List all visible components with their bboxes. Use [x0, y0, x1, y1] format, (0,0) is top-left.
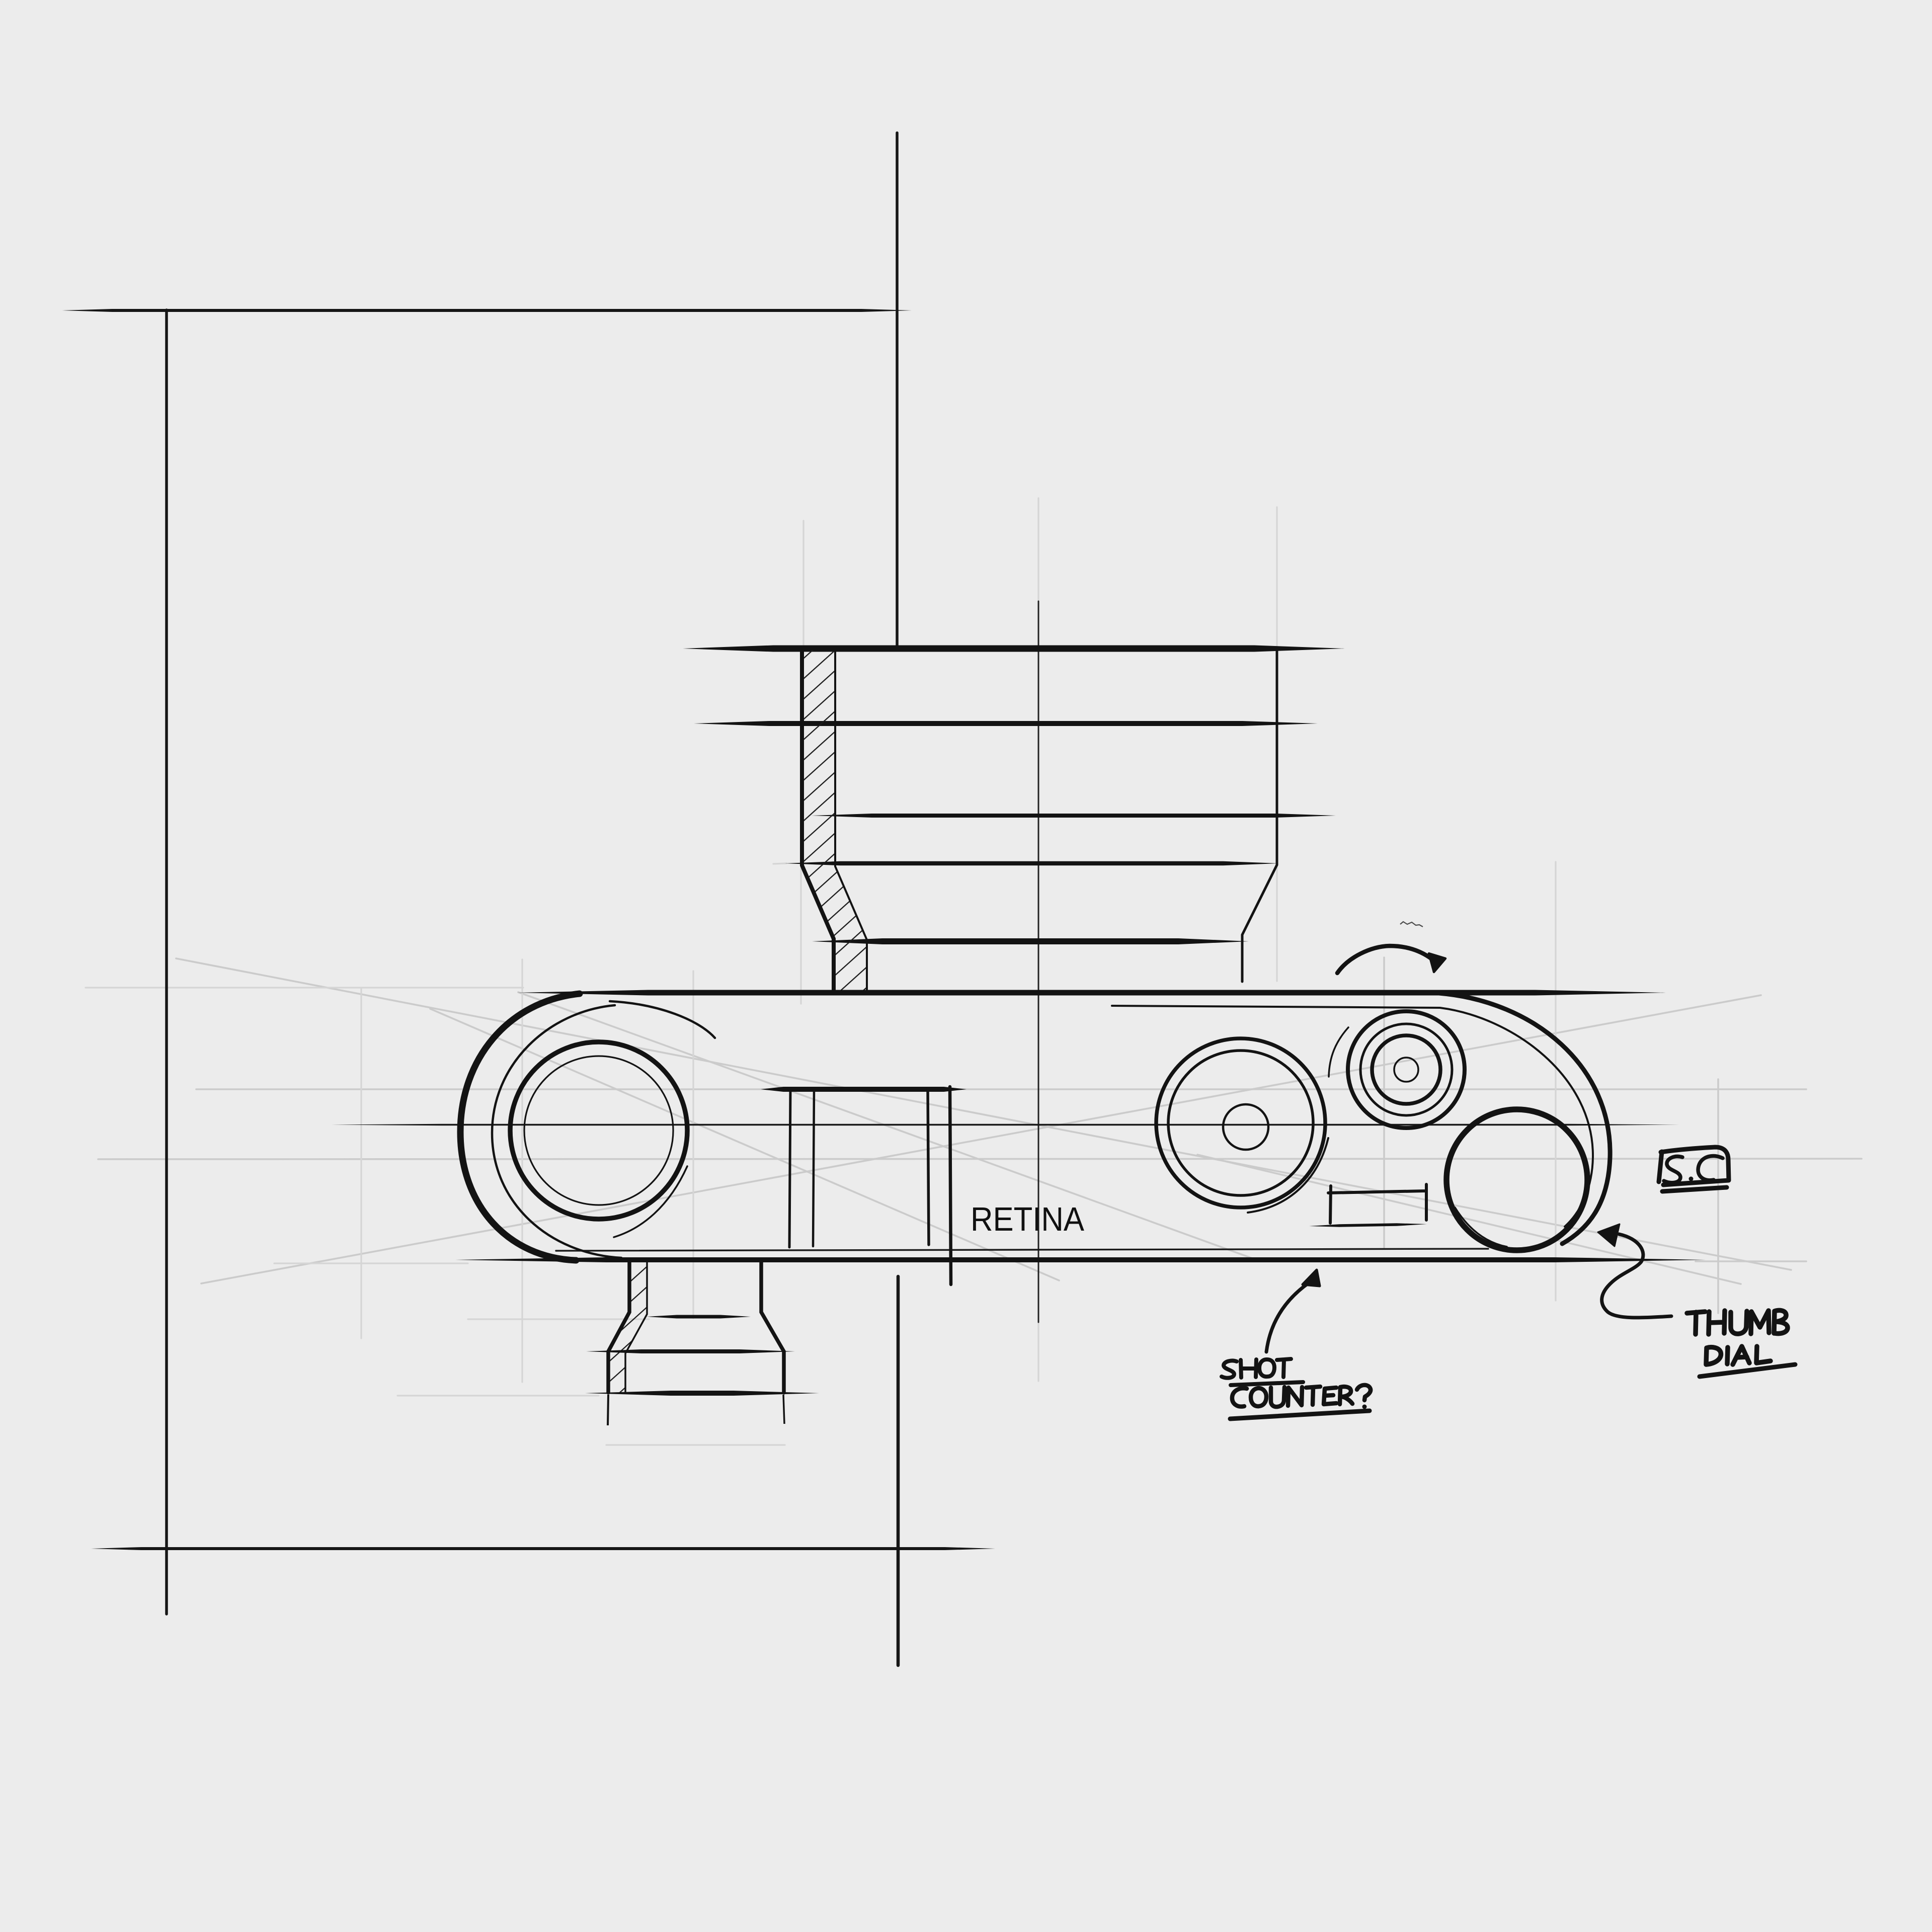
svg-text:RETINA: RETINA	[971, 1200, 1084, 1238]
